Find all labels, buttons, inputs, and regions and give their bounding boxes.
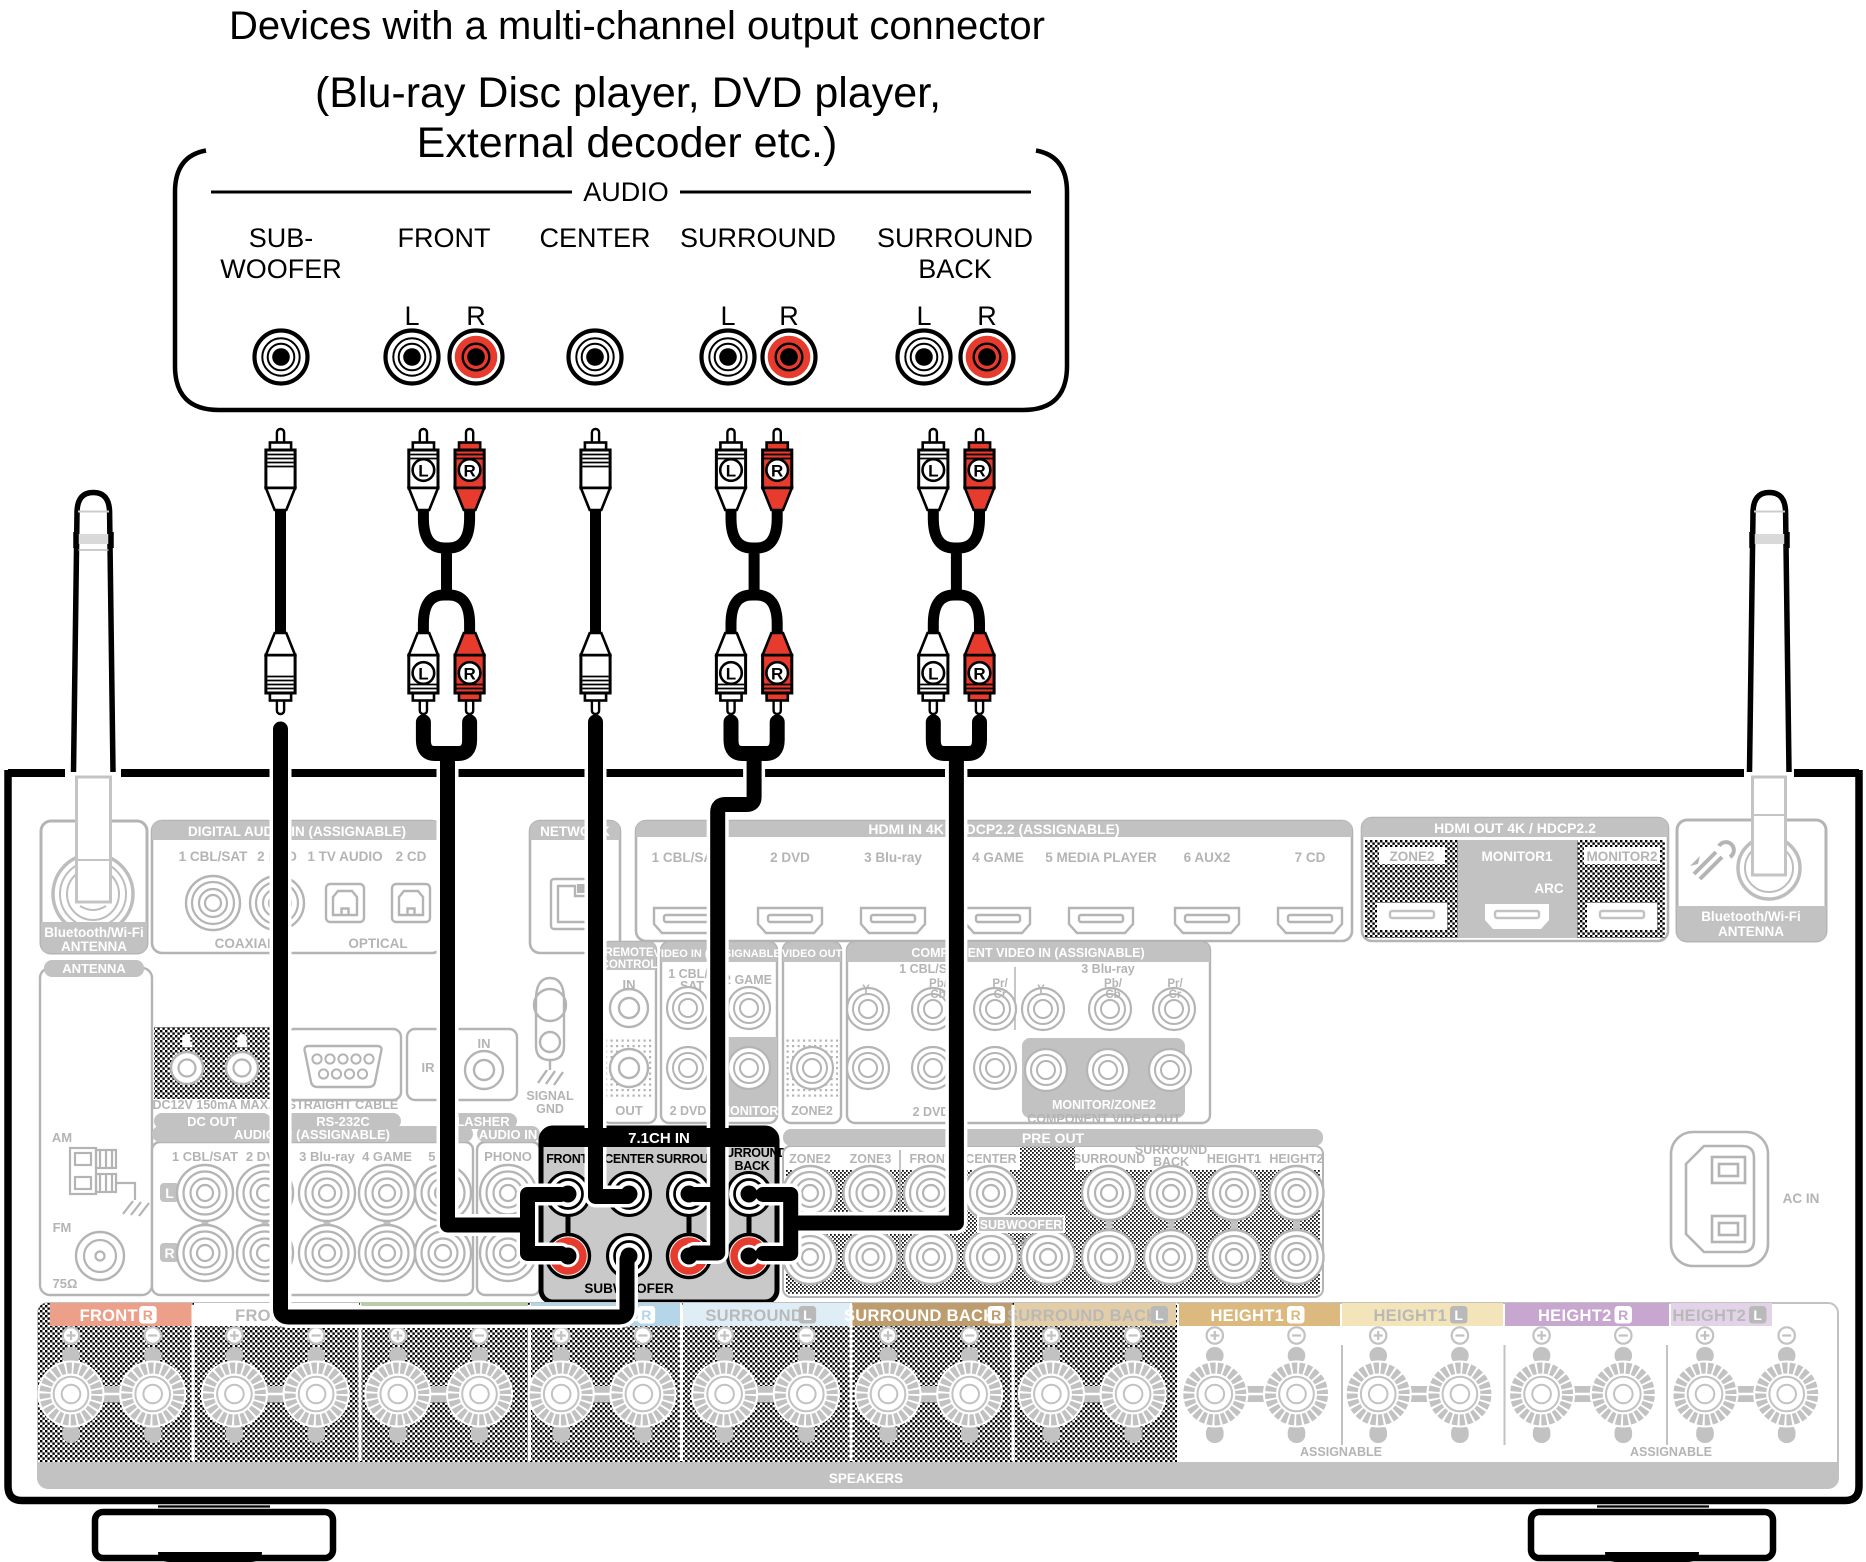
svg-text:HEIGHT1: HEIGHT1 bbox=[1210, 1307, 1284, 1325]
svg-text:1 2: 1 2 bbox=[1010, 1234, 1027, 1248]
svg-text:SPEAKERS: SPEAKERS bbox=[829, 1471, 903, 1486]
svg-text:L: L bbox=[418, 665, 428, 684]
svg-text:(Blu-ray Disc player, DVD play: (Blu-ray Disc player, DVD player, bbox=[315, 69, 941, 117]
svg-text:R: R bbox=[973, 665, 985, 684]
svg-text:External decoder etc.): External decoder etc.) bbox=[417, 119, 838, 167]
svg-text:L: L bbox=[418, 462, 428, 481]
svg-text:R: R bbox=[771, 462, 783, 481]
svg-text:Bluetooth/Wi-Fi: Bluetooth/Wi-Fi bbox=[1701, 909, 1801, 924]
svg-text:HEIGHT2: HEIGHT2 bbox=[1538, 1307, 1612, 1325]
svg-text:HDMI OUT 4K / HDCP2.2: HDMI OUT 4K / HDCP2.2 bbox=[1434, 820, 1596, 836]
svg-text:1: 1 bbox=[183, 1033, 190, 1048]
svg-text:7 CD: 7 CD bbox=[1295, 850, 1326, 865]
svg-text:L: L bbox=[1753, 1307, 1762, 1323]
svg-text:2 DVD: 2 DVD bbox=[913, 1105, 950, 1119]
svg-text:R: R bbox=[973, 462, 985, 481]
svg-text:HEIGHT2: HEIGHT2 bbox=[1269, 1152, 1323, 1166]
svg-text:IN: IN bbox=[478, 1036, 491, 1051]
svg-text:SURROUND BACK: SURROUND BACK bbox=[844, 1307, 995, 1325]
svg-text:ZONE2: ZONE2 bbox=[791, 1104, 833, 1118]
svg-text:SURROUND BACK: SURROUND BACK bbox=[1007, 1307, 1158, 1325]
svg-text:SUBWOOFER: SUBWOOFER bbox=[980, 1218, 1063, 1232]
svg-text:MONITOR1: MONITOR1 bbox=[1481, 849, 1552, 864]
svg-text:2: 2 bbox=[238, 1033, 245, 1048]
svg-text:2 DVD: 2 DVD bbox=[770, 850, 810, 865]
svg-text:GND: GND bbox=[536, 1102, 564, 1116]
svg-text:AUDIO: AUDIO bbox=[583, 177, 669, 207]
svg-text:ASSIGNABLE: ASSIGNABLE bbox=[1630, 1445, 1712, 1459]
svg-text:Cb: Cb bbox=[930, 989, 945, 1001]
svg-text:3 Blu-ray: 3 Blu-ray bbox=[299, 1149, 355, 1164]
svg-text:R: R bbox=[1291, 1307, 1301, 1323]
svg-text:AUDIO IN (ASSIGNABLE): AUDIO IN (ASSIGNABLE) bbox=[234, 1127, 390, 1142]
svg-text:AC IN: AC IN bbox=[1783, 1191, 1820, 1206]
svg-text:MONITOR2: MONITOR2 bbox=[1586, 849, 1657, 864]
svg-text:Cr: Cr bbox=[994, 989, 1007, 1001]
svg-text:HEIGHT2: HEIGHT2 bbox=[1672, 1307, 1746, 1325]
svg-text:L: L bbox=[803, 1307, 812, 1323]
svg-text:CONTROL: CONTROL bbox=[601, 959, 658, 971]
svg-text:R: R bbox=[771, 665, 783, 684]
svg-text:L: L bbox=[720, 301, 735, 331]
svg-text:FRONT: FRONT bbox=[80, 1307, 138, 1325]
svg-text:R: R bbox=[977, 301, 997, 331]
svg-text:ZONE3: ZONE3 bbox=[850, 1152, 892, 1166]
svg-text:R: R bbox=[164, 1245, 174, 1261]
svg-text:3 Blu-ray: 3 Blu-ray bbox=[1081, 962, 1135, 976]
svg-text:Cb: Cb bbox=[1105, 989, 1120, 1001]
svg-text:FRONT: FRONT bbox=[546, 1152, 588, 1166]
svg-text:2 CD: 2 CD bbox=[396, 849, 427, 864]
svg-text:L: L bbox=[726, 462, 736, 481]
svg-text:7.1CH IN: 7.1CH IN bbox=[628, 1130, 690, 1147]
svg-text:4 GAME: 4 GAME bbox=[972, 850, 1024, 865]
svg-text:HEIGHT1: HEIGHT1 bbox=[1373, 1307, 1447, 1325]
svg-text:VIDEO OUT: VIDEO OUT bbox=[782, 948, 843, 960]
svg-text:R: R bbox=[463, 462, 475, 481]
svg-text:ANTENNA: ANTENNA bbox=[1718, 924, 1784, 939]
svg-text:OUT: OUT bbox=[615, 1103, 643, 1118]
svg-text:ANTENNA: ANTENNA bbox=[61, 939, 127, 954]
svg-text:ZONE2: ZONE2 bbox=[1389, 849, 1434, 864]
svg-text:4 GAME: 4 GAME bbox=[362, 1149, 412, 1164]
svg-text:BACK: BACK bbox=[918, 254, 992, 284]
svg-text:ASSIGNABLE: ASSIGNABLE bbox=[1300, 1445, 1382, 1459]
svg-text:R: R bbox=[143, 1307, 153, 1323]
svg-text:ZONE2: ZONE2 bbox=[789, 1152, 831, 1166]
svg-text:OPTICAL: OPTICAL bbox=[348, 936, 407, 951]
svg-text:5 MEDIA PLAYER: 5 MEDIA PLAYER bbox=[1045, 850, 1157, 865]
svg-text:Y: Y bbox=[862, 984, 870, 996]
svg-text:L: L bbox=[1454, 1307, 1463, 1323]
svg-text:2 DVD: 2 DVD bbox=[670, 1104, 707, 1118]
svg-text:STRAIGHT CABLE: STRAIGHT CABLE bbox=[288, 1098, 398, 1112]
svg-text:SURROUND: SURROUND bbox=[877, 223, 1033, 253]
svg-text:REMOTE: REMOTE bbox=[604, 947, 654, 959]
svg-text:FRONT: FRONT bbox=[398, 223, 491, 253]
svg-text:CENTER: CENTER bbox=[539, 223, 650, 253]
svg-text:AM: AM bbox=[52, 1130, 72, 1145]
svg-text:COMPONENT VIDEO OUT: COMPONENT VIDEO OUT bbox=[1027, 1112, 1181, 1126]
svg-text:1 TV AUDIO: 1 TV AUDIO bbox=[307, 849, 382, 864]
svg-text:R: R bbox=[466, 301, 486, 331]
svg-text:R: R bbox=[463, 665, 475, 684]
svg-text:R: R bbox=[641, 1307, 651, 1323]
svg-text:R: R bbox=[1618, 1307, 1628, 1323]
svg-text:SURROUND: SURROUND bbox=[705, 1307, 803, 1325]
svg-text:HDMI IN 4K / HDCP2.2 (ASSIG: HDMI IN 4K / HDCP2.2 (ASSIGNABLE) bbox=[868, 821, 1119, 837]
svg-text:L: L bbox=[1155, 1307, 1164, 1323]
svg-text:IR: IR bbox=[422, 1060, 436, 1075]
svg-text:AUDIO IN: AUDIO IN bbox=[479, 1127, 538, 1142]
svg-text:ANTENNA: ANTENNA bbox=[62, 961, 126, 976]
svg-text:ARC: ARC bbox=[1534, 881, 1563, 896]
svg-text:L: L bbox=[726, 665, 736, 684]
svg-text:COAXIAL: COAXIAL bbox=[215, 936, 276, 951]
svg-text:L: L bbox=[404, 301, 419, 331]
svg-text:Y: Y bbox=[1037, 984, 1045, 996]
svg-text:DC12V 150mA MAX.: DC12V 150mA MAX. bbox=[152, 1098, 271, 1112]
svg-text:WOOFER: WOOFER bbox=[220, 254, 342, 284]
svg-text:L: L bbox=[928, 462, 938, 481]
svg-text:SIGNAL: SIGNAL bbox=[526, 1089, 574, 1103]
svg-text:DIGITAL AUDIO IN (ASSIGNABLE): DIGITAL AUDIO IN (ASSIGNABLE) bbox=[188, 824, 406, 839]
svg-text:2 GAME: 2 GAME bbox=[724, 973, 772, 987]
svg-text:CENTER: CENTER bbox=[965, 1152, 1016, 1166]
svg-text:SURROUND: SURROUND bbox=[680, 223, 836, 253]
svg-text:Cr: Cr bbox=[1169, 989, 1182, 1001]
svg-text:L: L bbox=[928, 665, 938, 684]
svg-text:L: L bbox=[916, 301, 931, 331]
svg-text:FM: FM bbox=[53, 1220, 72, 1235]
svg-text:3 Blu-ray: 3 Blu-ray bbox=[864, 850, 922, 865]
svg-text:R: R bbox=[779, 301, 799, 331]
svg-text:HEIGHT1: HEIGHT1 bbox=[1207, 1152, 1261, 1166]
svg-text:1 CBL/SAT: 1 CBL/SAT bbox=[172, 1149, 238, 1164]
svg-text:1 CBL/SAT: 1 CBL/SAT bbox=[179, 849, 249, 864]
svg-text:PHONO: PHONO bbox=[484, 1149, 532, 1164]
svg-text:R: R bbox=[991, 1307, 1001, 1323]
svg-text:BACK: BACK bbox=[735, 1159, 770, 1173]
svg-text:MONITOR/ZONE2: MONITOR/ZONE2 bbox=[1052, 1098, 1156, 1112]
svg-text:Devices with a multi-channel o: Devices with a multi-channel output conn… bbox=[229, 4, 1045, 48]
svg-text:PRE OUT: PRE OUT bbox=[1022, 1130, 1085, 1146]
svg-text:Bluetooth/Wi-Fi: Bluetooth/Wi-Fi bbox=[44, 925, 144, 940]
svg-text:CENTER: CENTER bbox=[604, 1152, 654, 1166]
svg-text:75Ω: 75Ω bbox=[53, 1276, 78, 1291]
svg-text:6 AUX2: 6 AUX2 bbox=[1184, 850, 1231, 865]
svg-text:L: L bbox=[165, 1185, 174, 1201]
svg-text:SUB-: SUB- bbox=[249, 223, 314, 253]
